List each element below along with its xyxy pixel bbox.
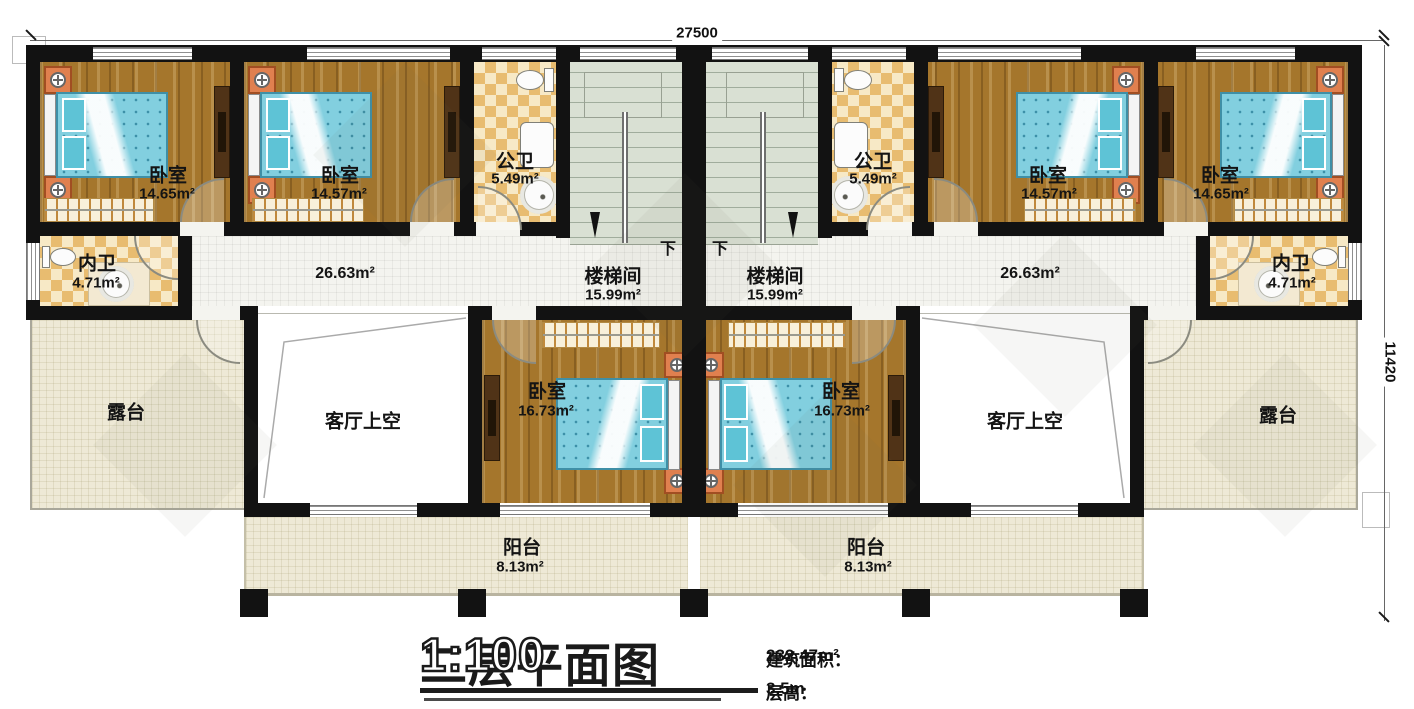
window: [1348, 243, 1362, 300]
room-label-stairwell-right: 楼梯间: [746, 262, 803, 289]
stairs-down-label-right: 下: [712, 235, 728, 259]
room-area-balcony-left: 8.13m²: [496, 559, 544, 576]
room-label-balcony-left: 阳台: [503, 533, 541, 560]
wall: [468, 313, 482, 517]
column: [458, 589, 486, 617]
stair-direction-arrow: [590, 212, 600, 238]
room-area-bedroom-a-right: 14.65m²: [1193, 186, 1249, 203]
window: [971, 505, 1078, 515]
pillow: [1302, 98, 1326, 132]
column: [902, 589, 930, 617]
stair-rail: [760, 112, 766, 243]
right-dimension-value: 11420: [1382, 338, 1399, 387]
corridor-area-left: 26.63m²: [315, 265, 375, 283]
nightstand: [1112, 66, 1140, 94]
title-scale: 1:100: [420, 627, 545, 682]
wall: [1130, 313, 1144, 517]
room-area-public-bath-right: 5.49m²: [849, 171, 897, 188]
room-area-master-bedroom-right: 16.73m²: [814, 403, 870, 420]
balcony-floor: [244, 517, 688, 593]
wardrobe: [728, 322, 846, 348]
bed-headboard: [708, 380, 720, 470]
window: [93, 47, 192, 60]
wall: [230, 62, 244, 225]
wall: [1078, 503, 1144, 517]
wall: [1196, 236, 1210, 306]
room-area-public-bath-left: 5.49m²: [491, 171, 539, 188]
window: [26, 243, 40, 300]
stair-rail: [622, 112, 628, 243]
bed-headboard: [1332, 94, 1344, 176]
unit-right: [694, 45, 1362, 620]
door-opening: [180, 222, 224, 236]
window: [307, 47, 450, 60]
pillow: [62, 98, 86, 132]
right-dimension-line: [1384, 45, 1385, 621]
pillow: [1302, 136, 1326, 170]
door-opening: [934, 222, 978, 236]
wall: [650, 503, 682, 517]
toilet-bowl: [516, 70, 544, 90]
desk: [484, 375, 500, 461]
door-opening: [1148, 306, 1196, 320]
room-area-stairwell-left: 15.99m²: [585, 287, 641, 304]
room-area-balcony-right: 8.13m²: [844, 559, 892, 576]
toilet-tank: [1338, 246, 1346, 268]
desk: [1158, 86, 1174, 178]
wall: [244, 313, 258, 517]
room-area-bedroom-b-right: 14.57m²: [1021, 186, 1077, 203]
wardrobe: [1234, 198, 1344, 222]
room-label-balcony-right: 阳台: [847, 533, 885, 560]
door-opening: [1164, 222, 1208, 236]
unit-left: [26, 45, 694, 620]
window: [1196, 47, 1295, 60]
room-area-master-bedroom-left: 16.73m²: [518, 403, 574, 420]
room-label-terrace-right: 露台: [1259, 401, 1297, 428]
column: [240, 589, 268, 617]
room-label-stairwell-left: 楼梯间: [584, 262, 641, 289]
window: [938, 47, 1081, 60]
party-wall: [682, 45, 706, 517]
window: [738, 505, 888, 515]
nightstand: [44, 66, 72, 94]
window: [712, 47, 808, 60]
room-area-stairwell-right: 15.99m²: [747, 287, 803, 304]
desk: [214, 86, 230, 178]
room-label-public-bath-left: 公卫: [496, 147, 534, 174]
wall: [888, 503, 906, 517]
corridor-area-right: 26.63m²: [1000, 265, 1060, 283]
room-label-public-bath-right: 公卫: [854, 147, 892, 174]
room-area-bedroom-a-left: 14.65m²: [139, 186, 195, 203]
room-label-living-void-right: 客厅上空: [987, 407, 1063, 434]
window: [580, 47, 676, 60]
toilet-tank: [834, 68, 844, 92]
pillow: [1098, 98, 1122, 132]
bed-headboard: [668, 380, 680, 470]
stairs-down-label-left: 下: [660, 235, 676, 259]
room-label-terrace-left: 露台: [107, 398, 145, 425]
wall: [178, 236, 192, 306]
wall: [460, 62, 474, 225]
door-opening: [410, 222, 454, 236]
window: [482, 47, 556, 60]
window: [310, 505, 417, 515]
room-label-bedroom-b-right: 卧室: [1029, 161, 1067, 188]
room-label-bedroom-b-left: 卧室: [321, 161, 359, 188]
pillow: [62, 136, 86, 170]
pillow: [1098, 136, 1122, 170]
room-label-master-bedroom-right: 卧室: [822, 377, 860, 404]
toilet-bowl: [844, 70, 872, 90]
parapet-notch: [1362, 492, 1390, 528]
top-dimension-value: 27500: [672, 25, 722, 42]
desk: [888, 375, 904, 461]
room-label-inner-bath-right: 内卫: [1272, 249, 1310, 276]
floor-plan-canvas: 卧室 14.65m² 卧室 14.57m² 公卫 5.49m² 楼梯间 15.9…: [0, 0, 1414, 709]
column: [1120, 589, 1148, 617]
title-underline: [420, 688, 758, 693]
room-area-inner-bath-left: 4.71m²: [72, 275, 120, 292]
column: [680, 589, 708, 617]
window: [500, 505, 650, 515]
bed-headboard: [1128, 94, 1140, 176]
toilet-bowl: [50, 248, 76, 266]
door-opening: [852, 306, 896, 320]
pillow: [266, 136, 290, 170]
title-underline-2: [424, 698, 721, 701]
room-label-master-bedroom-left: 卧室: [528, 377, 566, 404]
balcony-floor: [700, 517, 1144, 593]
wall: [706, 503, 738, 517]
floor-height-value: 3.5m: [766, 679, 805, 699]
wall: [556, 58, 570, 238]
pillow: [724, 384, 748, 420]
wall: [914, 62, 928, 225]
pillow: [266, 98, 290, 132]
room-area-inner-bath-right: 4.71m²: [1268, 275, 1316, 292]
building-area-value: 232.47m²: [766, 646, 839, 666]
wall: [417, 503, 482, 517]
wall: [1144, 62, 1158, 225]
bed-headboard: [44, 94, 56, 176]
room-label-bedroom-a-left: 卧室: [149, 161, 187, 188]
pillow: [640, 426, 664, 462]
room-label-living-void-left: 客厅上空: [325, 407, 401, 434]
door-opening: [192, 306, 240, 320]
room-label-inner-bath-left: 内卫: [78, 249, 116, 276]
pillow: [724, 426, 748, 462]
toilet-bowl: [1312, 248, 1338, 266]
room-label-bedroom-a-right: 卧室: [1201, 161, 1239, 188]
door-opening: [492, 306, 536, 320]
wall: [818, 58, 832, 238]
nightstand: [1316, 66, 1344, 94]
toilet-tank: [42, 246, 50, 268]
wall: [244, 503, 310, 517]
stair-direction-arrow: [788, 212, 798, 238]
wall: [482, 503, 500, 517]
nightstand: [248, 66, 276, 94]
desk: [928, 86, 944, 178]
bed-headboard: [248, 94, 260, 176]
pillow: [640, 384, 664, 420]
wardrobe: [44, 198, 154, 222]
room-area-bedroom-b-left: 14.57m²: [311, 186, 367, 203]
window: [832, 47, 906, 60]
wall: [906, 503, 971, 517]
toilet-tank: [544, 68, 554, 92]
wardrobe: [542, 322, 660, 348]
wall: [906, 313, 920, 517]
desk: [444, 86, 460, 178]
